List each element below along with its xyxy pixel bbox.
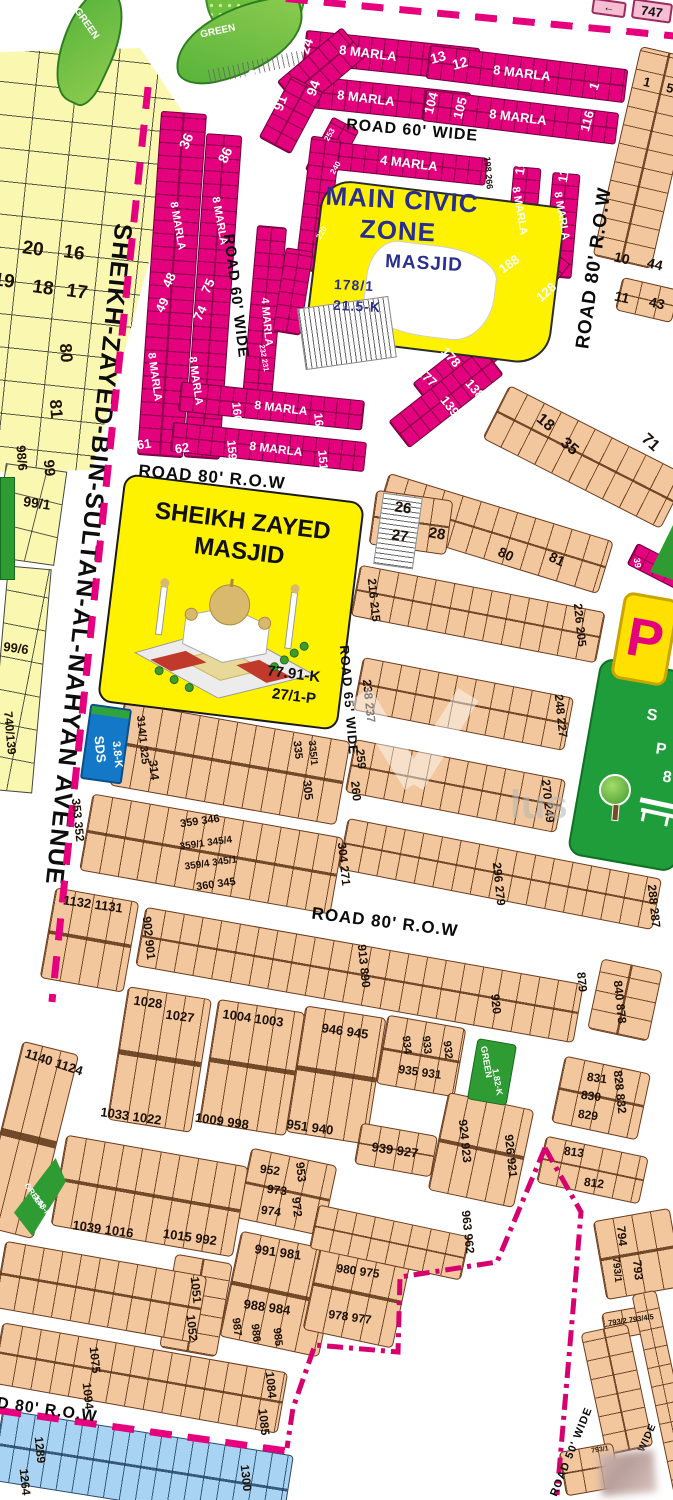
plot-label: 99 bbox=[41, 459, 57, 477]
plot-label: 305 bbox=[301, 779, 315, 800]
plot-label: 43 bbox=[648, 294, 666, 311]
plot-label: S bbox=[646, 707, 659, 724]
plot-label: 932 bbox=[441, 1040, 454, 1059]
plot-label: 830 bbox=[580, 1089, 602, 1104]
plot-label: 39 bbox=[632, 557, 643, 568]
plot-label: 26 bbox=[394, 499, 413, 516]
plot-label: 972 bbox=[290, 1196, 304, 1217]
plot-label: 1084 bbox=[264, 1371, 279, 1399]
plot-label: 1264 bbox=[18, 1468, 33, 1496]
plot-label: 314 bbox=[147, 759, 161, 780]
plot-label: 151 bbox=[316, 449, 330, 470]
plot-label: 167 bbox=[312, 412, 326, 433]
plot-label: 81 bbox=[47, 399, 66, 419]
watermark-text: lus bbox=[510, 783, 568, 828]
plot-label: 793 bbox=[631, 1259, 645, 1280]
plot-label: 831 bbox=[586, 1071, 608, 1086]
civic-zone-plot-no: 178/1 bbox=[334, 276, 375, 294]
civic-zone-masjid-label: MASJID bbox=[385, 251, 464, 277]
plot-label: 985 bbox=[271, 1327, 284, 1346]
plot-label: 813 bbox=[563, 1145, 585, 1160]
plot-label: 12 bbox=[451, 54, 470, 72]
plot-label: 159 bbox=[225, 439, 239, 460]
civic-zone-title2: ZONE bbox=[359, 214, 437, 249]
plot-label: 933 bbox=[420, 1035, 433, 1054]
plot-label: 99/1 bbox=[23, 494, 52, 512]
plot-label: 812 bbox=[583, 1176, 605, 1191]
plot-label: 335 bbox=[291, 740, 304, 759]
plot-label: 953 bbox=[294, 1161, 308, 1182]
plot-label: 920 bbox=[489, 993, 503, 1014]
plot-label: 62 bbox=[174, 441, 190, 456]
plot-label: 28 bbox=[427, 525, 446, 543]
plot-label: 974 bbox=[260, 1204, 282, 1219]
plot-label: 794 bbox=[615, 1225, 629, 1246]
plot-label: 117 bbox=[556, 161, 572, 184]
plot-label: 197 bbox=[513, 152, 530, 176]
plot-label: 1052 bbox=[185, 1314, 200, 1342]
plot-label: 1085 bbox=[257, 1408, 272, 1436]
plot-label: 1289 bbox=[33, 1436, 48, 1464]
plot-label: 27 bbox=[391, 527, 410, 544]
plot-label: 18 bbox=[31, 277, 55, 299]
plot-label: 11 bbox=[613, 289, 631, 306]
plot-label: 13 bbox=[429, 48, 448, 66]
plot-label: 198 266 bbox=[482, 156, 494, 189]
plot-label: 934 bbox=[400, 1035, 413, 1054]
plot-label: 973 bbox=[266, 1183, 288, 1198]
plot-label: 1027 bbox=[165, 1008, 195, 1025]
plot-label: 793/1 bbox=[610, 1257, 623, 1283]
plot-label: 1075 bbox=[88, 1346, 103, 1374]
plot-label: 160 bbox=[230, 401, 244, 422]
plot-label: 986 bbox=[249, 1323, 262, 1342]
blurred-stamp bbox=[598, 1450, 656, 1497]
plot-label: P bbox=[655, 741, 668, 758]
civic-zone-area: 21.5-K bbox=[333, 297, 382, 315]
plot-label: 987 bbox=[230, 1317, 243, 1336]
plot-label: 99/6 bbox=[3, 640, 30, 656]
plot-label: 260 bbox=[349, 780, 363, 801]
plot-label: 17 bbox=[65, 281, 89, 303]
plot-label: 1300 bbox=[239, 1464, 254, 1492]
plot-label: 16 bbox=[62, 242, 86, 264]
plot-label: 61 bbox=[136, 437, 152, 452]
plot-label: 829 bbox=[577, 1108, 599, 1123]
plot-label: 335/1 bbox=[306, 740, 319, 766]
plot-label: 80 bbox=[57, 343, 76, 363]
plot-label: 1051 bbox=[189, 1276, 204, 1304]
plot-label: 19 bbox=[0, 270, 16, 292]
plot-label: 10 bbox=[613, 249, 631, 266]
plot-label: 879 bbox=[575, 971, 589, 992]
plot-label: 98/6 bbox=[14, 445, 29, 471]
plot-label: 740/139 bbox=[2, 711, 18, 755]
plot-label: 20 bbox=[21, 238, 45, 260]
plot-label: 44 bbox=[646, 255, 664, 272]
plot-label: 952 bbox=[259, 1163, 281, 1178]
society-plot-map: MAIN CIVIC ZONE MASJID 178/1 21.5-K P bbox=[0, 0, 673, 1500]
plot-label: 1028 bbox=[133, 994, 163, 1011]
